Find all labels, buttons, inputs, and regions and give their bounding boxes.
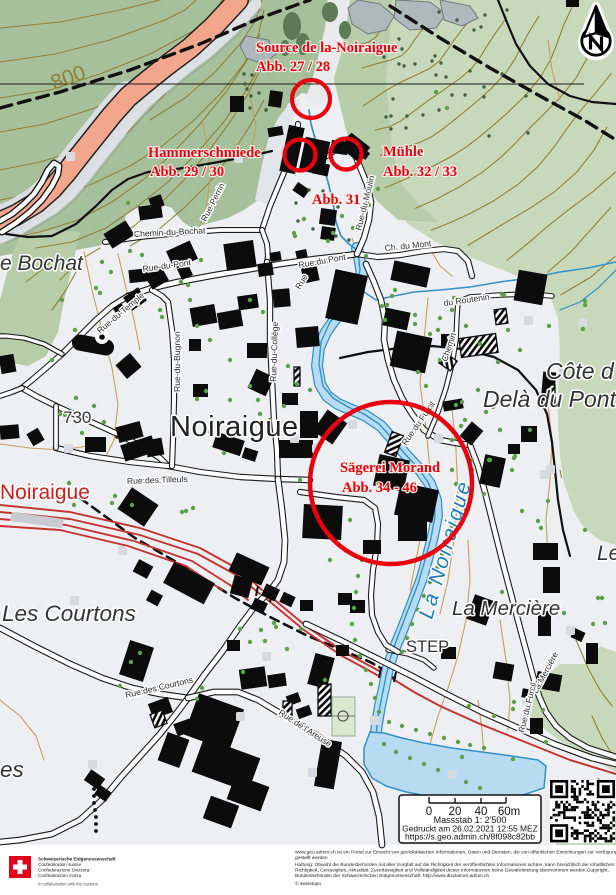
svg-text:e Bochat: e Bochat [0,252,84,275]
svg-text:Rue-du-Bugnon: Rue-du-Bugnon [172,331,182,392]
svg-text:Mühle: Mühle [383,144,424,160]
svg-text:https://s.geo.admin.ch/8f098c8: https://s.geo.admin.ch/8f098c82bb [405,832,535,842]
svg-text:STEP: STEP [406,638,449,656]
svg-text:730: 730 [63,408,91,427]
svg-text:Sägerei Morand: Sägerei Morand [340,460,440,476]
svg-text:Noiraigue: Noiraigue [170,411,299,443]
svg-text:Confederaziun svizra: Confederaziun svizra [38,873,82,878]
svg-text:Rue:des:Tilleuls: Rue:des:Tilleuls [127,474,188,486]
svg-text:La Mercière: La Mercière [452,597,560,620]
svg-text:In collaboration with the cant: In collaboration with the cantons [38,882,98,887]
svg-text:Le: Le [597,542,616,565]
svg-text:www.geo.admin.ch ist ein Porta: www.geo.admin.ch ist ein Portal zur Eins… [295,850,616,856]
svg-text:Rue-du-Collège: Rue-du-Collège [268,321,280,382]
svg-text:Abb. 27 / 28: Abb. 27 / 28 [256,59,330,75]
svg-text:Abb. 34 - 46: Abb. 34 - 46 [342,480,417,496]
svg-text:gestellt werden: gestellt werden [295,855,328,861]
svg-text:Delà du Pont: Delà du Pont [483,386,616,412]
svg-text:es: es [0,757,24,782]
svg-text:Bundesbehörden der Schweizeris: Bundesbehörden der Schweizerischen Eidge… [295,873,489,879]
svg-text:Les Courtons: Les Courtons [2,601,136,626]
svg-text:Abb. 32 / 33: Abb. 32 / 33 [383,164,457,180]
svg-text:Schweizerische Eidgenossenscha: Schweizerische Eidgenossenschaft [38,857,116,862]
svg-text:Hammerschmiede: Hammerschmiede [148,145,261,161]
svg-text:Noiraigue: Noiraigue [0,481,90,504]
svg-text:Richtigkeit, Genauigkeit, Aktu: Richtigkeit, Genauigkeit, Aktualität, Zu… [295,868,609,874]
svg-text:Abb. 29 / 30: Abb. 29 / 30 [150,164,224,180]
svg-text:0: 0 [426,806,432,818]
svg-text:Côte d: Côte d [546,358,615,384]
svg-text:© swisstopo: © swisstopo [295,880,321,887]
svg-text:Abb. 31: Abb. 31 [312,192,360,208]
svg-text:Confédération suisse: Confédération suisse [38,862,82,867]
svg-text:Haftung: Obwohl die Bundesbehö: Haftung: Obwohl die Bundesbehörden mit a… [295,862,615,868]
svg-text:Source de la-Noiraigue: Source de la-Noiraigue [256,40,398,56]
svg-text:Confederazione Svizzera: Confederazione Svizzera [38,868,90,873]
